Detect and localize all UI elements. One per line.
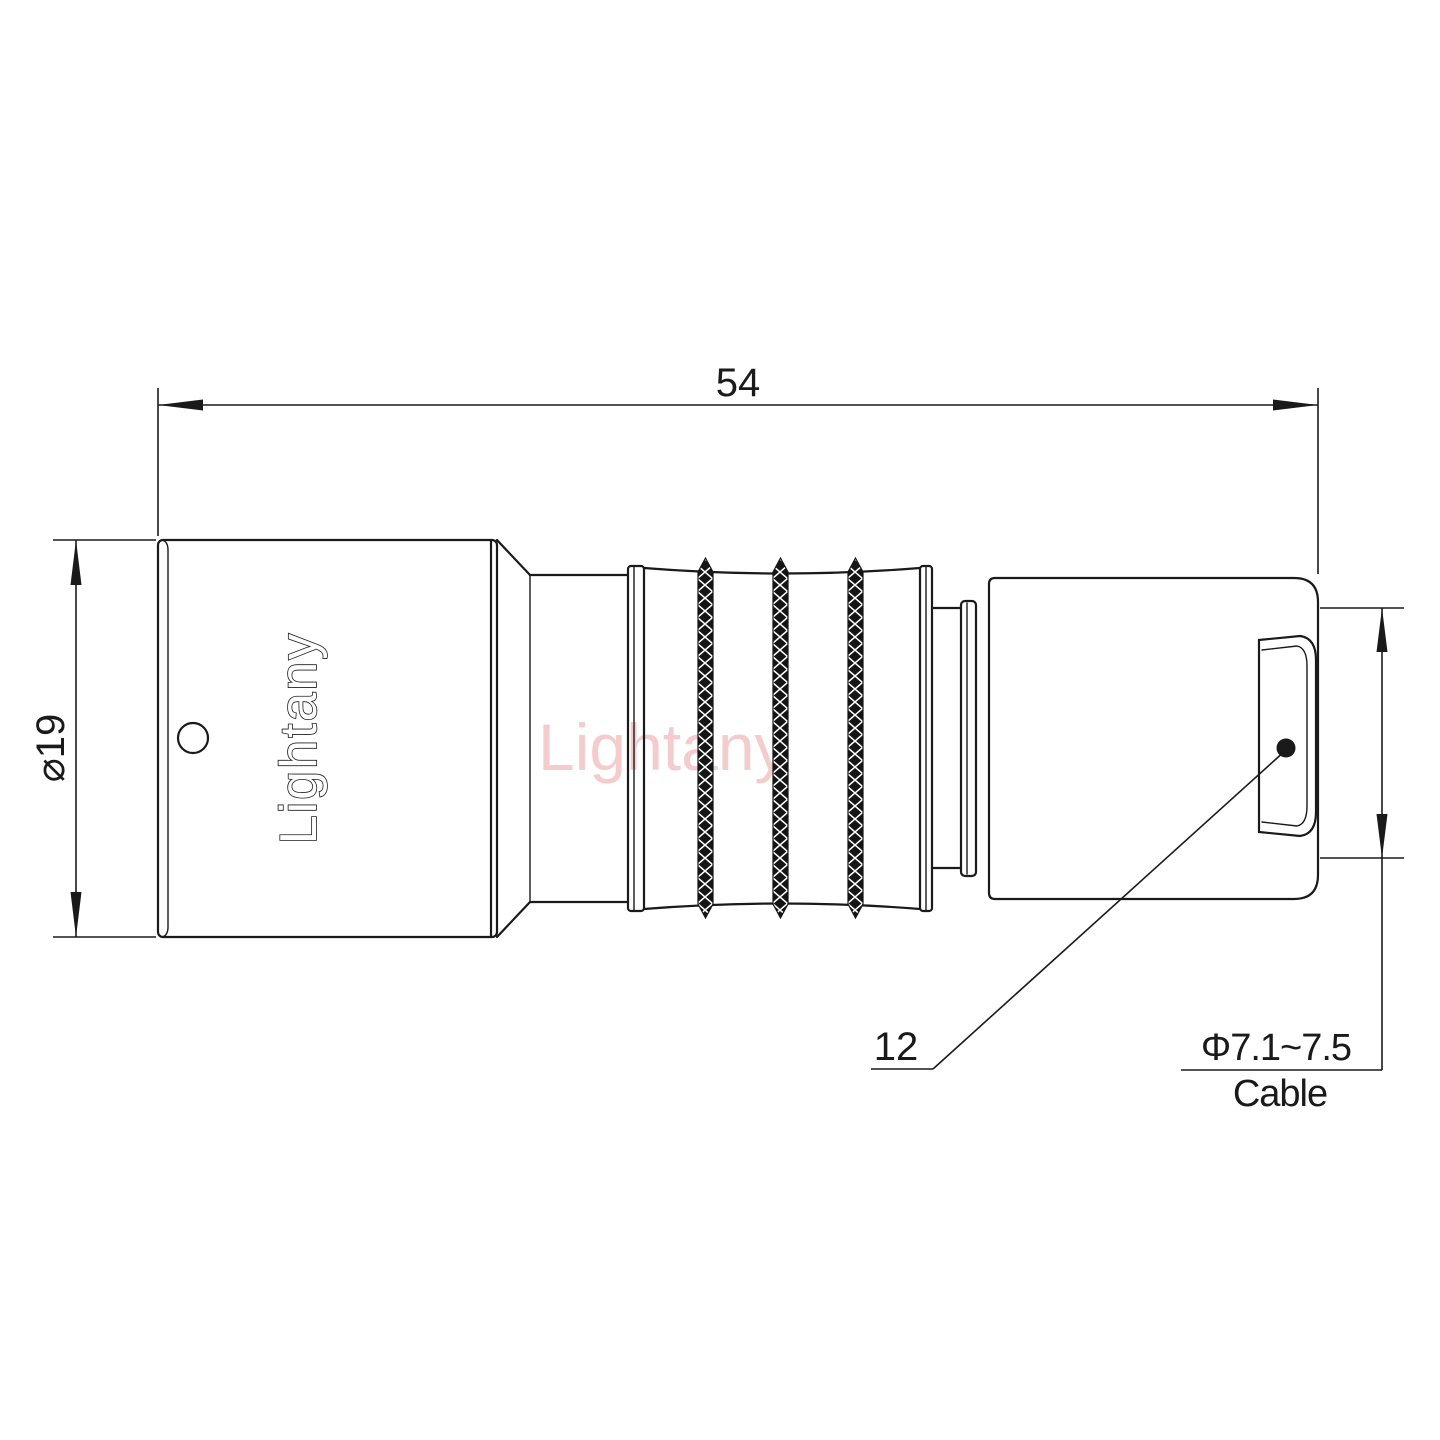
cable-diameter-text: Φ7.1~7.5 <box>1201 1027 1351 1069</box>
dim-diameter-19: ⌀19 <box>29 540 156 937</box>
groove <box>932 608 961 868</box>
label-12: 12 <box>871 750 1286 1069</box>
dim-length-text: 54 <box>716 361 761 405</box>
front-chamfer-line <box>162 540 168 937</box>
dim-rear-text: 12 <box>874 1025 919 1069</box>
dim-length-54: 54 <box>158 361 1318 574</box>
knurl-band <box>773 558 788 918</box>
dim-cable: Φ7.1~7.5 Cable <box>1181 608 1404 1115</box>
barrel-rim-right <box>920 566 932 911</box>
cable-entry-inner <box>1262 646 1307 826</box>
knurl-band <box>848 558 863 918</box>
arrowhead-left-icon <box>158 400 203 411</box>
cable-entry-dot <box>1277 739 1296 758</box>
cone-taper <box>497 540 530 937</box>
rear-body <box>989 578 1318 899</box>
arrowhead-right-icon <box>1273 400 1318 411</box>
drawing-svg: Lightany Lightany <box>0 0 1440 1440</box>
cable-label-text: Cable <box>1233 1073 1327 1115</box>
retaining-ring <box>961 601 976 876</box>
technical-drawing: Lightany Lightany <box>0 0 1440 1440</box>
brand-text: Lightany <box>270 632 328 845</box>
shell-hole <box>178 723 208 753</box>
watermark-text: Lightany <box>538 710 788 784</box>
dim-diameter-text: ⌀19 <box>29 714 73 783</box>
arrowhead-up-icon <box>1377 608 1388 652</box>
arrowhead-down-icon <box>1377 814 1388 858</box>
arrowhead-down-icon <box>71 892 82 937</box>
knurl-band <box>698 558 713 918</box>
front-shell: Lightany <box>158 540 497 937</box>
arrowhead-up-icon <box>71 540 82 585</box>
